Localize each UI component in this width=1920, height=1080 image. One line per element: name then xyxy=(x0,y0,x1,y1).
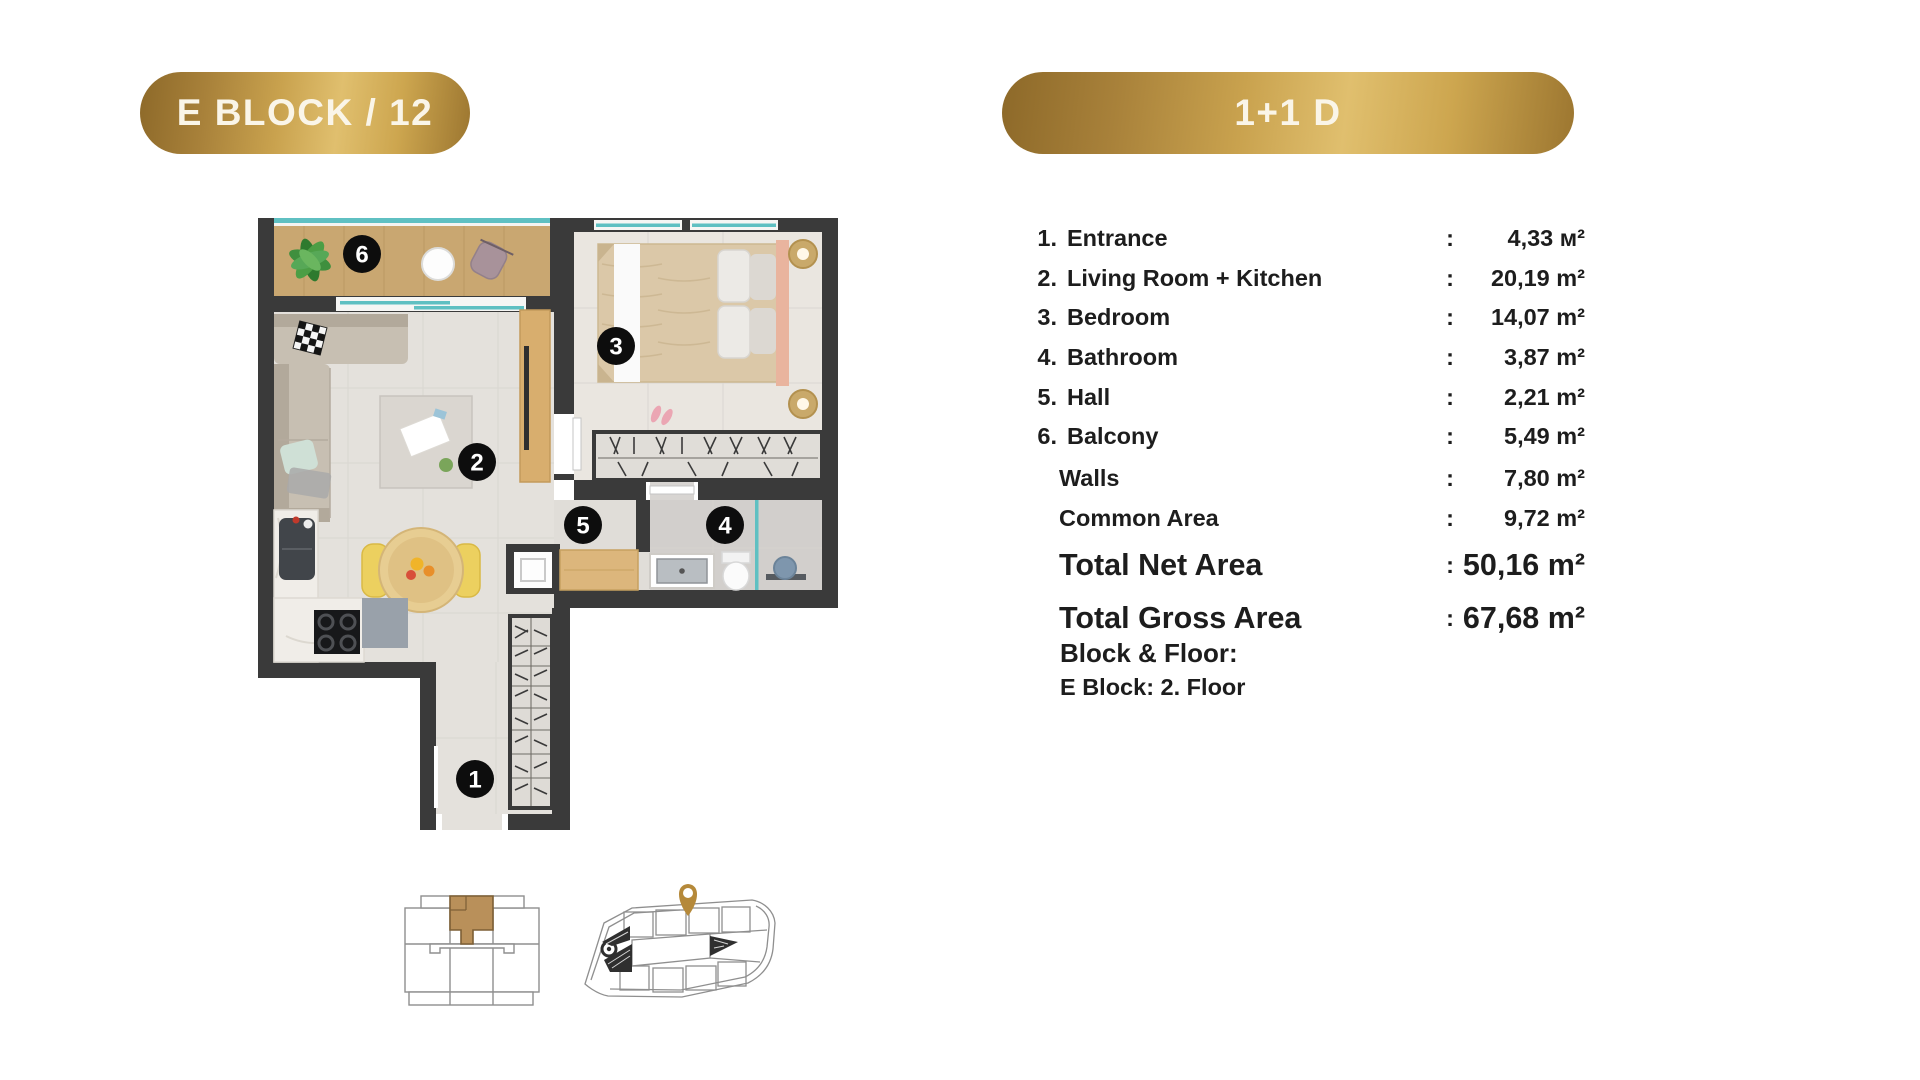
row-label: Entrance xyxy=(1059,225,1441,252)
bed xyxy=(598,240,789,386)
row-colon: : xyxy=(1441,225,1459,252)
row-label: Common Area xyxy=(1029,505,1441,532)
row-colon: : xyxy=(1441,265,1459,292)
row-value: 67,68 m² xyxy=(1459,601,1585,636)
room-marker-1: 1 xyxy=(456,760,494,798)
row-value: 9,72 m² xyxy=(1459,505,1585,532)
row-number: 5. xyxy=(1029,384,1059,411)
row-colon: : xyxy=(1441,344,1459,371)
room-marker-4: 4 xyxy=(706,506,744,544)
block-unit-badge-label: E BLOCK / 12 xyxy=(177,92,434,134)
coffee-table xyxy=(380,396,472,488)
entrance-closet xyxy=(510,616,552,808)
tv-unit xyxy=(520,310,550,482)
wardrobe xyxy=(594,432,822,480)
area-row-hall: 5. Hall : 2,21 m² xyxy=(1029,377,1585,417)
building-key-plan-drawing xyxy=(392,888,556,1010)
area-row-walls: Walls : 7,80 m² xyxy=(1029,458,1585,498)
row-colon: : xyxy=(1441,605,1459,632)
unit-type-badge: 1+1 D xyxy=(1002,72,1574,154)
area-subtotals: Walls : 7,80 m² Common Area : 9,72 m² xyxy=(1029,458,1585,538)
area-row-common-area: Common Area : 9,72 m² xyxy=(1029,498,1585,538)
row-label: Walls xyxy=(1029,465,1441,492)
room-marker-2: 2 xyxy=(458,443,496,481)
svg-text:2: 2 xyxy=(470,450,483,477)
row-number: 6. xyxy=(1029,423,1059,450)
area-row-bedroom: 3. Bedroom : 14,07 m² xyxy=(1029,298,1585,338)
hall-furniture xyxy=(506,544,638,594)
row-number: 4. xyxy=(1029,344,1059,371)
svg-text:5: 5 xyxy=(576,513,589,540)
row-label: Hall xyxy=(1059,384,1441,411)
row-colon: : xyxy=(1441,505,1459,532)
row-value: 50,16 m² xyxy=(1459,548,1585,583)
room-marker-3: 3 xyxy=(597,327,635,365)
bathroom-door-leaf xyxy=(650,486,694,494)
row-label: Bathroom xyxy=(1059,344,1441,371)
pillow xyxy=(718,306,750,358)
total-net-area-row: Total Net Area : 50,16 m² xyxy=(1029,539,1585,592)
row-label: Total Net Area xyxy=(1029,548,1441,583)
block-floor-info: Block & Floor: E Block: 2. Floor xyxy=(1060,638,1245,700)
headboard xyxy=(776,240,789,386)
room-marker-5: 5 xyxy=(564,506,602,544)
row-colon: : xyxy=(1441,552,1459,579)
row-label: Living Room + Kitchen xyxy=(1059,265,1441,292)
row-value: 20,19 m² xyxy=(1459,265,1585,292)
pillow xyxy=(750,254,776,300)
row-label: Bedroom xyxy=(1059,304,1441,331)
row-colon: : xyxy=(1441,384,1459,411)
svg-text:6: 6 xyxy=(355,242,368,269)
area-row-living: 2. Living Room + Kitchen : 20,19 m² xyxy=(1029,259,1585,299)
area-row-entrance: 1. Entrance : 4,33 м² xyxy=(1029,219,1585,259)
row-number: 2. xyxy=(1029,265,1059,292)
washing-machine xyxy=(514,552,552,588)
toilet xyxy=(722,552,750,590)
pillow xyxy=(750,308,776,354)
row-colon: : xyxy=(1441,304,1459,331)
floorplan-brochure-page: { "header": { "left_badge": "E BLOCK / 1… xyxy=(0,0,1920,1080)
block-floor-title: Block & Floor: xyxy=(1060,638,1245,668)
area-row-bathroom: 4. Bathroom : 3,87 m² xyxy=(1029,338,1585,378)
entry-side-jamb xyxy=(434,746,438,808)
row-colon: : xyxy=(1441,465,1459,492)
svg-text:4: 4 xyxy=(718,513,732,540)
shower-glass xyxy=(755,500,759,590)
svg-text:3: 3 xyxy=(609,334,622,361)
nightstand-lamp xyxy=(789,390,817,418)
row-number: 1. xyxy=(1029,225,1059,252)
site-plan-drawing xyxy=(560,880,796,1022)
floor-plan-drawing: 1 2 3 4 5 6 xyxy=(258,218,838,830)
building-key-plan xyxy=(392,888,556,1010)
tv xyxy=(524,346,529,450)
area-table: 1. Entrance : 4,33 м² 2. Living Room + K… xyxy=(1029,219,1585,457)
pillow xyxy=(718,250,750,302)
row-value: 14,07 m² xyxy=(1459,304,1585,331)
kitchen-cabinet xyxy=(362,598,408,648)
svg-text:1: 1 xyxy=(468,767,481,794)
floor-plan: 1 2 3 4 5 6 xyxy=(258,218,838,830)
row-label: Total Gross Area xyxy=(1029,601,1441,636)
block-unit-badge: E BLOCK / 12 xyxy=(140,72,470,154)
row-label: Balcony xyxy=(1059,423,1441,450)
site-plan xyxy=(560,880,796,1022)
row-value: 2,21 m² xyxy=(1459,384,1585,411)
area-totals: Total Net Area : 50,16 m² Total Gross Ar… xyxy=(1029,539,1585,645)
nightstand-lamp xyxy=(789,240,817,268)
row-value: 4,33 м² xyxy=(1459,225,1585,252)
block-floor-value: E Block: 2. Floor xyxy=(1060,674,1245,700)
balcony-table xyxy=(422,248,454,280)
row-value: 5,49 m² xyxy=(1459,423,1585,450)
bedroom-door-leaf xyxy=(573,418,581,470)
row-number: 3. xyxy=(1029,304,1059,331)
row-value: 3,87 m² xyxy=(1459,344,1585,371)
checkered-pillow xyxy=(293,321,327,355)
row-colon: : xyxy=(1441,423,1459,450)
room-marker-6: 6 xyxy=(343,235,381,273)
unit-type-badge-label: 1+1 D xyxy=(1234,92,1341,134)
row-value: 7,80 m² xyxy=(1459,465,1585,492)
balcony-railing xyxy=(274,218,550,223)
area-row-balcony: 6. Balcony : 5,49 m² xyxy=(1029,417,1585,457)
